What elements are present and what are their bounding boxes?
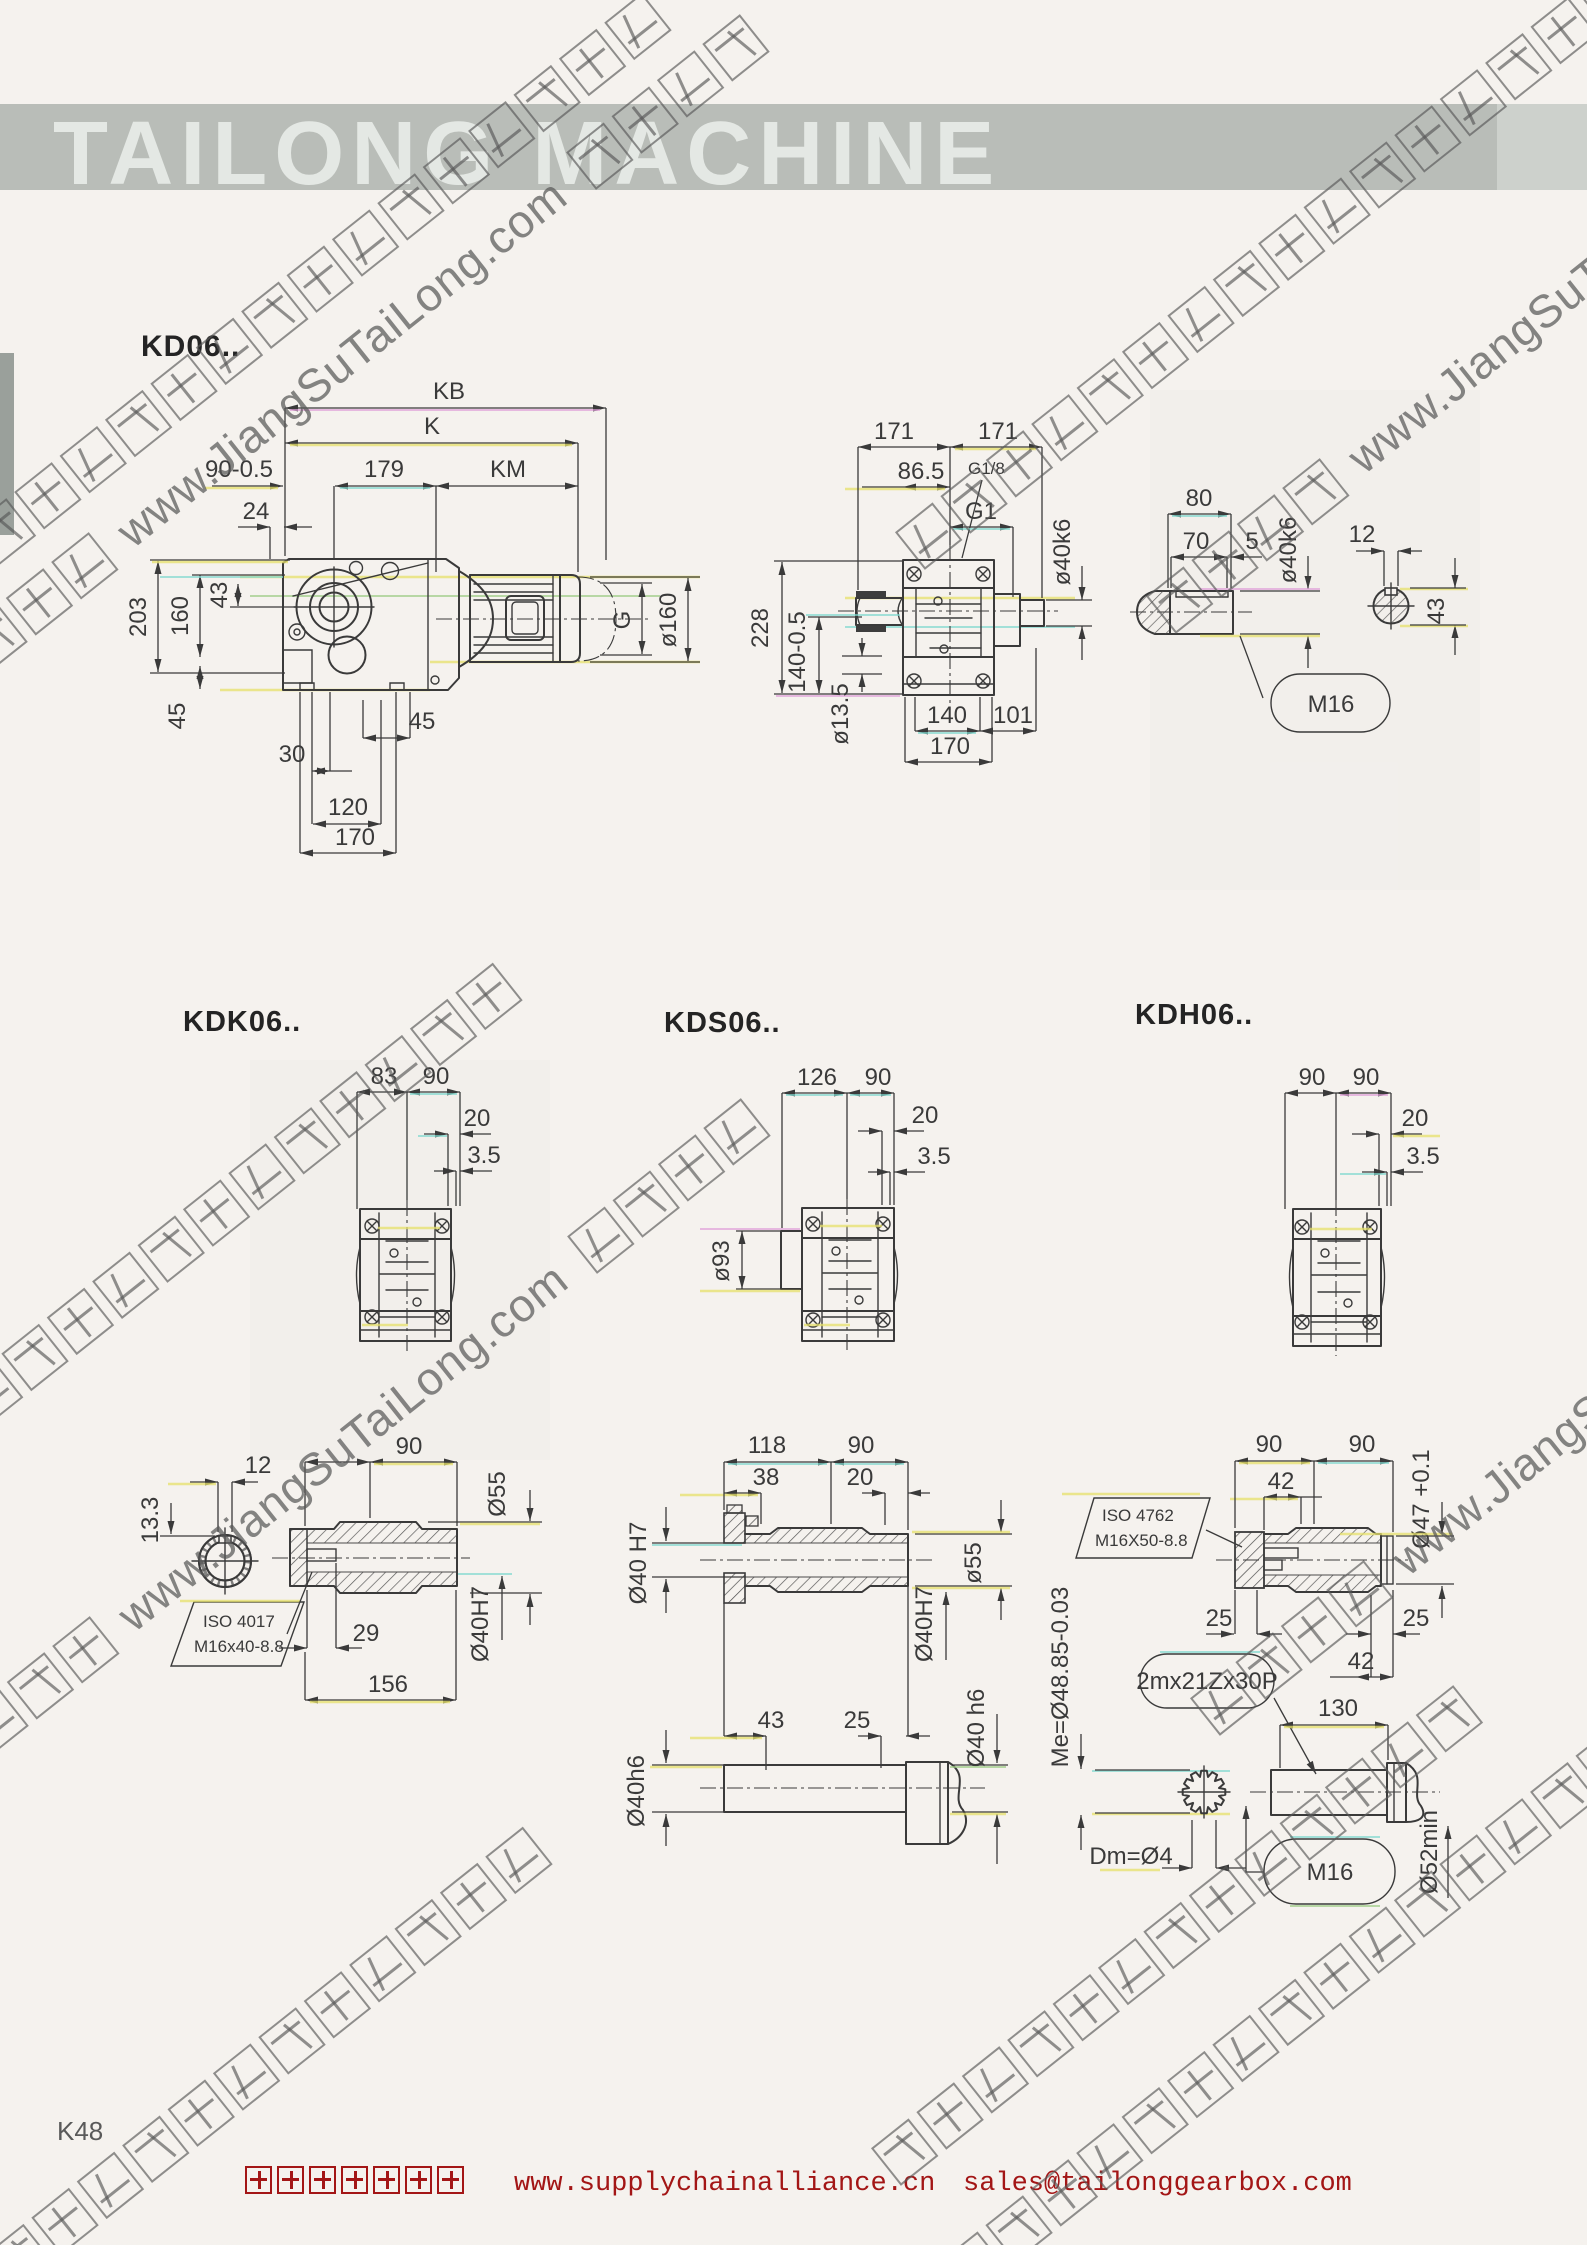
svg-text:25: 25 xyxy=(1403,1605,1430,1632)
svg-text:42: 42 xyxy=(1268,1468,1295,1495)
svg-text:43: 43 xyxy=(1423,598,1450,625)
svg-text:25: 25 xyxy=(1206,1605,1233,1632)
svg-text:ø40k6: ø40k6 xyxy=(1049,519,1076,586)
svg-text:K: K xyxy=(424,413,440,440)
svg-text:KM: KM xyxy=(490,456,526,483)
svg-text:203: 203 xyxy=(125,597,152,637)
svg-text:24: 24 xyxy=(243,498,270,525)
svg-text:Ø40 h6: Ø40 h6 xyxy=(963,1689,990,1768)
svg-text:Ø40H7: Ø40H7 xyxy=(467,1586,494,1662)
svg-text:ø160: ø160 xyxy=(655,593,682,648)
svg-text:42: 42 xyxy=(1348,1648,1375,1675)
svg-text:29: 29 xyxy=(353,1620,380,1647)
svg-text:43: 43 xyxy=(206,582,233,609)
svg-text:118: 118 xyxy=(748,1432,786,1459)
svg-text:160: 160 xyxy=(167,596,194,636)
svg-text:Ø40H7: Ø40H7 xyxy=(911,1586,938,1662)
svg-text:171: 171 xyxy=(874,418,914,445)
svg-text:20: 20 xyxy=(912,1102,939,1129)
svg-text:Ø40 H7: Ø40 H7 xyxy=(625,1522,652,1605)
svg-text:90: 90 xyxy=(1349,1431,1376,1458)
svg-text:3.5: 3.5 xyxy=(917,1143,950,1170)
svg-text:170: 170 xyxy=(335,824,375,851)
svg-text:228: 228 xyxy=(747,608,774,648)
svg-text:80: 80 xyxy=(1186,485,1213,512)
svg-text:13.3: 13.3 xyxy=(137,1497,164,1544)
svg-text:KB: KB xyxy=(433,378,465,405)
svg-text:M16x40-8.8: M16x40-8.8 xyxy=(194,1637,284,1656)
svg-text:20: 20 xyxy=(1402,1105,1429,1132)
svg-text:12: 12 xyxy=(1349,521,1376,548)
svg-text:90: 90 xyxy=(865,1064,892,1091)
svg-text:90: 90 xyxy=(1256,1431,1283,1458)
svg-text:90: 90 xyxy=(1353,1064,1380,1091)
svg-text:30: 30 xyxy=(279,741,306,768)
svg-text:G: G xyxy=(609,611,636,630)
svg-text:130: 130 xyxy=(1318,1695,1358,1722)
svg-text:45: 45 xyxy=(409,708,436,735)
svg-text:156: 156 xyxy=(368,1671,408,1698)
svg-text:Ø40h6: Ø40h6 xyxy=(623,1755,650,1827)
svg-text:90: 90 xyxy=(848,1432,875,1459)
svg-text:120: 120 xyxy=(328,794,368,821)
svg-text:20: 20 xyxy=(847,1464,874,1491)
svg-text:ISO 4017: ISO 4017 xyxy=(203,1612,275,1631)
svg-text:3.5: 3.5 xyxy=(467,1142,500,1169)
svg-text:ISO 4762: ISO 4762 xyxy=(1102,1506,1174,1525)
svg-text:101: 101 xyxy=(993,702,1033,729)
svg-text:Me=Ø48.85-0.03: Me=Ø48.85-0.03 xyxy=(1047,1587,1074,1768)
svg-text:20: 20 xyxy=(464,1105,491,1132)
svg-text:ø55: ø55 xyxy=(960,1542,987,1583)
svg-text:M16X50-8.8: M16X50-8.8 xyxy=(1095,1531,1188,1550)
svg-text:Ø55: Ø55 xyxy=(484,1471,511,1516)
svg-text:45: 45 xyxy=(164,703,191,730)
svg-text:170: 170 xyxy=(930,733,970,760)
svg-text:ø93: ø93 xyxy=(708,1240,735,1281)
svg-text:M16: M16 xyxy=(1308,691,1355,718)
svg-text:3.5: 3.5 xyxy=(1406,1143,1439,1170)
svg-text:Dm=Ø4: Dm=Ø4 xyxy=(1089,1843,1172,1870)
svg-text:90: 90 xyxy=(1299,1064,1326,1091)
svg-text:86.5: 86.5 xyxy=(898,458,945,485)
svg-text:179: 179 xyxy=(364,456,404,483)
svg-text:43: 43 xyxy=(758,1707,785,1734)
svg-text:25: 25 xyxy=(844,1707,871,1734)
svg-text:140-0.5: 140-0.5 xyxy=(784,611,811,692)
svg-text:38: 38 xyxy=(753,1464,780,1491)
svg-text:ø13.5: ø13.5 xyxy=(827,683,854,744)
svg-text:126: 126 xyxy=(797,1064,837,1091)
svg-text:140: 140 xyxy=(927,702,967,729)
